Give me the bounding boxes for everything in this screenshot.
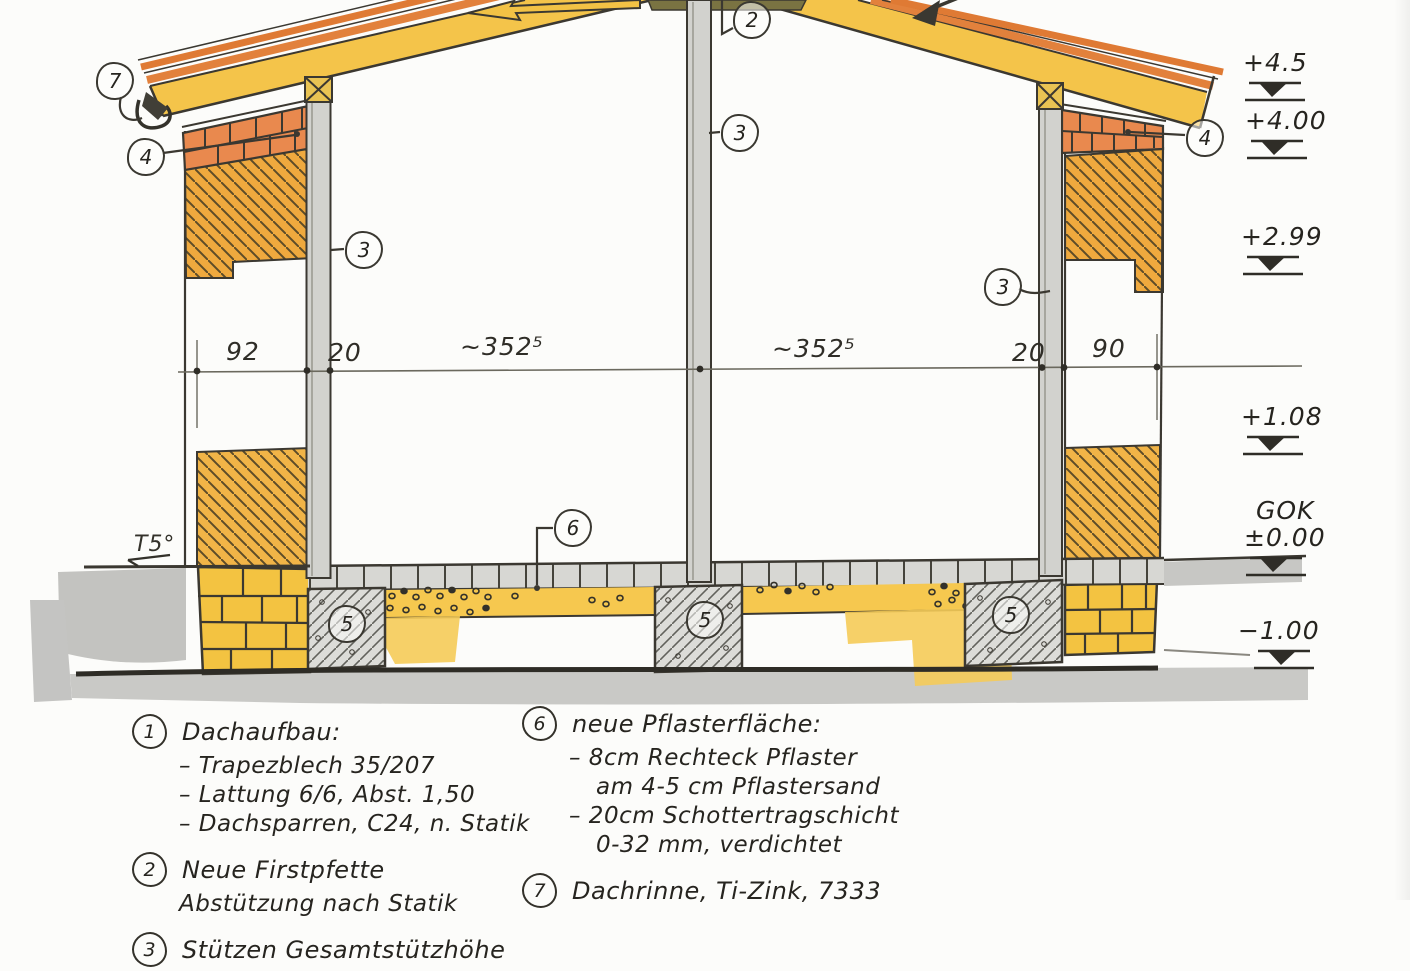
terrain-label: T5° bbox=[134, 532, 175, 557]
note-title: Neue Firstpfette bbox=[182, 856, 385, 884]
note-line: – 20cm Schottertragschicht bbox=[569, 803, 899, 829]
note-line: Abstützung nach Statik bbox=[179, 891, 530, 917]
dim-left-wall: 92 bbox=[226, 337, 260, 366]
level-mark-icon bbox=[1245, 136, 1311, 162]
callout-7-gutter-left: 7 bbox=[96, 62, 134, 100]
ridge-purlin-cut bbox=[648, 0, 806, 10]
scan-edge-shade bbox=[1394, 0, 1410, 900]
note-line: – Dachsparren, C24, n. Statik bbox=[179, 811, 530, 837]
note-line: – Trapezblech 35/207 bbox=[179, 753, 530, 779]
roof-left-slope bbox=[137, 0, 652, 128]
note-line: am 4-5 cm Pflastersand bbox=[596, 774, 899, 800]
note-line: – 8cm Rechteck Pflaster bbox=[569, 745, 899, 771]
note-number-circle: 3 bbox=[132, 932, 167, 967]
elevation-marker-4-5: +4.5 bbox=[1243, 48, 1309, 104]
elevation-value: +2.99 bbox=[1241, 222, 1323, 251]
callout-4-left-brick: 4 bbox=[127, 138, 165, 176]
callout-2-ridge: 2 bbox=[733, 1, 771, 39]
notes-left: 1 Dachaufbau: – Trapezblech 35/207 – Lat… bbox=[132, 714, 530, 971]
note-line: – Lattung 6/6, Abst. 1,50 bbox=[179, 782, 530, 808]
elevation-value: +4.5 bbox=[1243, 48, 1309, 77]
elevation-value: +1.08 bbox=[1241, 402, 1323, 431]
level-mark-icon bbox=[1241, 432, 1307, 458]
level-mark-icon bbox=[1243, 78, 1309, 104]
callout-5-foundation-center: 5 bbox=[686, 601, 724, 639]
note-title: Dachaufbau: bbox=[182, 718, 341, 746]
posts bbox=[305, 0, 1063, 582]
elevation-marker-gok: GOK ±0.00 bbox=[1244, 496, 1326, 579]
dim-right-post: 20 bbox=[1012, 338, 1046, 367]
callout-5-foundation-right: 5 bbox=[992, 596, 1030, 634]
level-mark-icon bbox=[1252, 646, 1318, 672]
left-wall bbox=[182, 99, 314, 674]
note-number-circle: 6 bbox=[522, 706, 557, 741]
note-title: neue Pflasterfläche: bbox=[572, 710, 822, 738]
note-number-circle: 1 bbox=[132, 714, 167, 749]
note-item-6: 6 neue Pflasterfläche: bbox=[522, 706, 899, 741]
note-title: Stützen Gesamtstützhöhe bbox=[182, 936, 505, 964]
callout-5-foundation-left: 5 bbox=[328, 605, 366, 643]
elevation-marker-1-08: +1.08 bbox=[1241, 402, 1323, 458]
callout-3-left-post: 3 bbox=[345, 231, 383, 269]
elevation-gok-label: GOK bbox=[1256, 496, 1326, 525]
roof-right-slope bbox=[468, 0, 1223, 128]
callout-4-right-brick: 4 bbox=[1186, 119, 1224, 157]
note-item-1: 1 Dachaufbau: bbox=[132, 714, 530, 749]
elevation-value: +4.00 bbox=[1245, 106, 1327, 135]
note-item-3: 3 Stützen Gesamtstützhöhe bbox=[132, 932, 530, 967]
level-mark-icon bbox=[1241, 252, 1307, 278]
callout-6-paving: 6 bbox=[554, 509, 592, 547]
note-number-circle: 7 bbox=[522, 873, 557, 908]
elevation-marker-4-00: +4.00 bbox=[1245, 106, 1327, 162]
note-item-2: 2 Neue Firstpfette bbox=[132, 852, 530, 887]
elevation-marker-minus-1-00: −1.00 bbox=[1238, 616, 1320, 672]
note-title: Dachrinne, Ti-Zink, 7333 bbox=[572, 877, 881, 905]
left-post bbox=[307, 100, 331, 578]
note-number-circle: 2 bbox=[132, 852, 167, 887]
elevation-marker-2-99: +2.99 bbox=[1241, 222, 1323, 278]
dim-left-post: 20 bbox=[328, 338, 362, 367]
note-line: 0-32 mm, verdichtet bbox=[596, 832, 899, 858]
center-post bbox=[687, 0, 711, 582]
callout-3-right-post: 3 bbox=[984, 268, 1022, 306]
dim-right-wall: 90 bbox=[1092, 334, 1126, 363]
scanned-sketch-page: { "meta": { "description": "Hand-drawn b… bbox=[0, 0, 1410, 900]
dim-left-span: ~352⁵ bbox=[460, 332, 544, 361]
dim-right-span: ~352⁵ bbox=[772, 334, 856, 363]
elevation-gok-value: ±0.00 bbox=[1244, 523, 1326, 552]
notes-right: 6 neue Pflasterfläche: – 8cm Rechteck Pf… bbox=[522, 706, 899, 912]
note-item-7: 7 Dachrinne, Ti-Zink, 7333 bbox=[522, 873, 899, 908]
elevation-value: −1.00 bbox=[1238, 616, 1320, 645]
level-mark-icon bbox=[1244, 553, 1310, 579]
callout-3-center-post: 3 bbox=[721, 114, 759, 152]
